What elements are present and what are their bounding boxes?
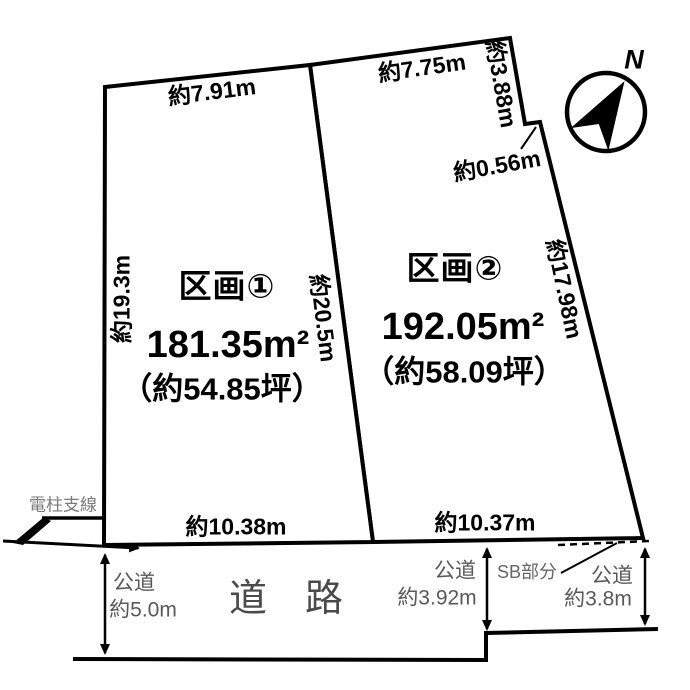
compass [567, 70, 645, 151]
road-label: 道 路 [229, 580, 343, 618]
land-plot-diagram: 約7.91m 約7.75m 約3.88m 約0.56m 約17.98m 約20.… [0, 0, 690, 690]
setback-dashed-line [558, 541, 649, 545]
setback-label: SB部分 [497, 563, 557, 581]
road-left-width: 約5.0m [109, 600, 177, 621]
road-boundary-line [73, 629, 658, 660]
road-center-type: 公道 [434, 561, 476, 582]
dim-parcel1-bottom: 約10.38m [185, 516, 286, 539]
road-left-type: 公道 [113, 573, 155, 594]
utility-pole-label: 電柱支線 [29, 497, 97, 514]
road-right-type: 公道 [591, 566, 633, 587]
diagram-linework [0, 0, 690, 690]
parcel1-area: 181.35m² [147, 326, 310, 364]
parcel1-name: 区画① [179, 270, 276, 303]
dim-parcel2-bottom: 約10.37m [434, 512, 535, 535]
parcel1-area-tsubo: （約54.85坪） [121, 374, 323, 405]
road-center-width: 約3.92m [397, 588, 476, 609]
compass-north-label: N [624, 47, 644, 74]
dim-parcel1-left: 約19.3m [111, 255, 134, 343]
parcel2-area-tsubo: （約58.09坪） [363, 357, 565, 388]
road-right-width: 約3.8m [564, 589, 632, 610]
parcel2-name: 区画② [407, 252, 504, 285]
parcel2-area: 192.05m² [382, 308, 545, 346]
